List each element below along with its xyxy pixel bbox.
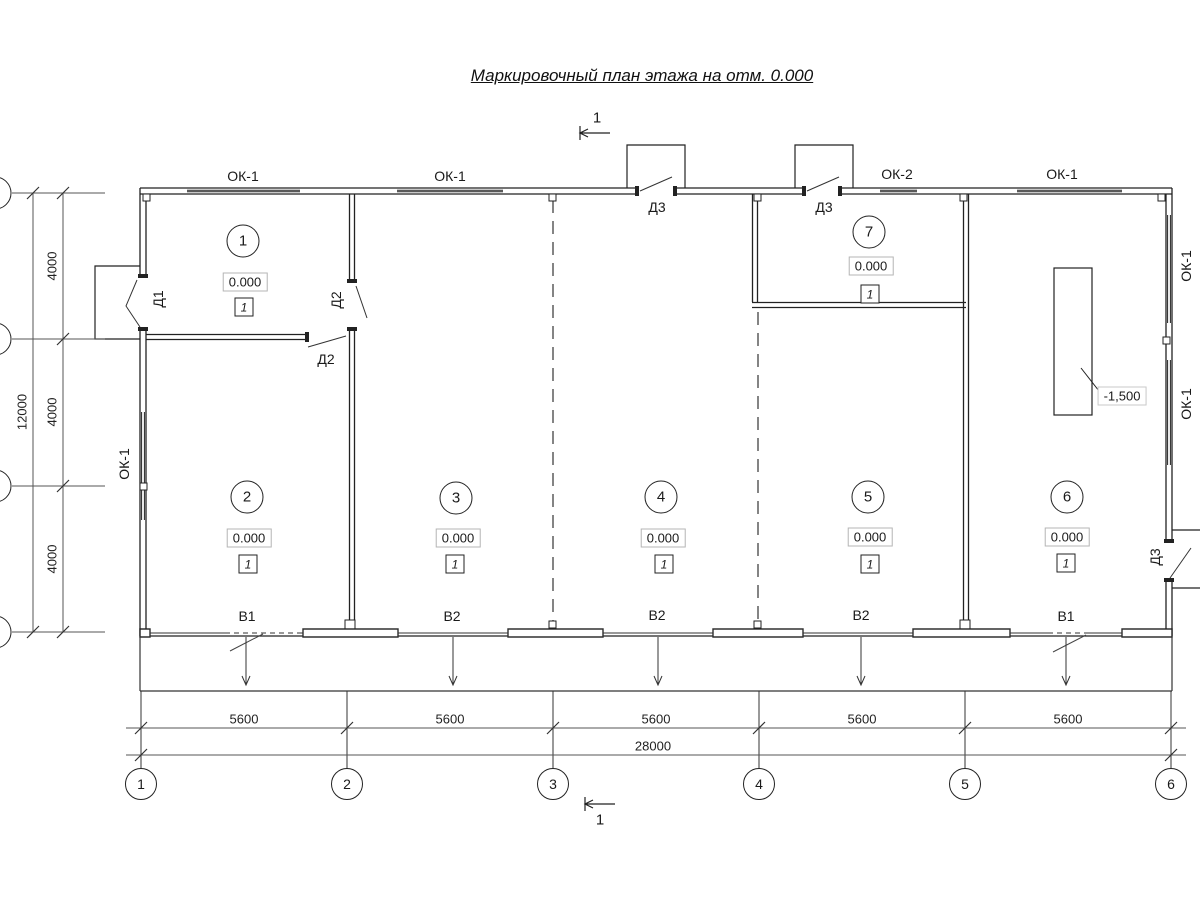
axis-2-label: 2 xyxy=(343,776,351,792)
room-2-number: 2 xyxy=(243,489,251,506)
dim-left-4000-1: 4000 xyxy=(45,252,60,281)
room-6-type-mark: 1 xyxy=(1057,554,1076,573)
axis-1-label: 1 xyxy=(137,776,145,792)
dim-left-4000-2: 4000 xyxy=(45,398,60,427)
axis-circle-6: 6 xyxy=(1155,768,1187,800)
dim-bottom-5600-1: 5600 xyxy=(230,712,259,727)
pit-outline xyxy=(1054,268,1099,415)
room-4-type-mark: 1 xyxy=(655,555,674,574)
room-5-number-circle: 5 xyxy=(852,481,885,514)
floor-plan-sheet: Маркировочный план этажа на отм. 0.000 1… xyxy=(0,0,1200,900)
pit-elevation-label: -1,500 xyxy=(1098,387,1147,406)
dim-bottom-5600-3: 5600 xyxy=(642,712,671,727)
room-2-type-mark: 1 xyxy=(239,555,258,574)
window-label-ok1-top-2: ОК-1 xyxy=(434,168,466,184)
axis-circle-5: 5 xyxy=(949,768,981,800)
door-label-d2-vertical: Д2 xyxy=(328,291,344,308)
gate-label-v2-2: В2 xyxy=(648,607,665,623)
axis-6-label: 6 xyxy=(1167,776,1175,792)
dim-left-4000-3: 4000 xyxy=(45,545,60,574)
room-1-number: 1 xyxy=(239,233,247,250)
window-label-ok1-top-1: ОК-1 xyxy=(227,168,259,184)
room-3-number: 3 xyxy=(452,490,460,507)
door-leaves xyxy=(126,177,1191,578)
room-3-elevation: 0.000 xyxy=(436,529,481,548)
gate-label-v2-3: В2 xyxy=(852,607,869,623)
room-2-elevation: 0.000 xyxy=(227,529,272,548)
window-label-ok2-top: ОК-2 xyxy=(881,166,913,182)
room-6-number: 6 xyxy=(1063,489,1071,506)
room-1-number-circle: 1 xyxy=(227,225,260,258)
room-5-number: 5 xyxy=(864,489,872,506)
dim-bottom-5600-5: 5600 xyxy=(1054,712,1083,727)
axis-3-label: 3 xyxy=(549,776,557,792)
door-label-d3-top-1: Д3 xyxy=(648,199,665,215)
gate-label-v1-2: В1 xyxy=(1057,608,1074,624)
dim-left-total-12000: 12000 xyxy=(15,394,30,430)
dim-bottom-5600-4: 5600 xyxy=(848,712,877,727)
room-7-type-mark: 1 xyxy=(861,285,880,304)
room-7-number: 7 xyxy=(865,224,873,241)
room-2-number-circle: 2 xyxy=(231,481,264,514)
room-6-number-circle: 6 xyxy=(1051,481,1084,514)
dim-bottom-5600-2: 5600 xyxy=(436,712,465,727)
window-label-ok1-top-3: ОК-1 xyxy=(1046,166,1078,182)
window-label-ok1-right-1: ОК-1 xyxy=(1178,250,1194,282)
axis-5-label: 5 xyxy=(961,776,969,792)
axis-4-label: 4 xyxy=(755,776,763,792)
window-label-ok1-left: ОК-1 xyxy=(116,448,132,480)
wall-end-caps xyxy=(138,186,1174,582)
window-label-ok1-right-2: ОК-1 xyxy=(1178,388,1194,420)
section-marks xyxy=(580,126,615,811)
door-label-d3-top-2: Д3 xyxy=(815,199,832,215)
room-3-number-circle: 3 xyxy=(440,482,473,515)
axis-circle-3: 3 xyxy=(537,768,569,800)
room-5-type-mark: 1 xyxy=(861,555,880,574)
room-1-elevation: 0.000 xyxy=(223,273,268,292)
gate-label-v2-1: В2 xyxy=(443,608,460,624)
axis-circle-1: 1 xyxy=(125,768,157,800)
axis-circle-2: 2 xyxy=(331,768,363,800)
door-label-d1: Д1 xyxy=(150,290,166,307)
loading-apron xyxy=(140,636,1172,691)
room-7-elevation: 0.000 xyxy=(849,257,894,276)
room-3-type-mark: 1 xyxy=(446,555,465,574)
window-glazing-lines xyxy=(142,190,1171,520)
bottom-dimension-lines xyxy=(126,691,1186,768)
section-mark-top-label: 1 xyxy=(593,110,601,127)
room-6-elevation: 0.000 xyxy=(1045,528,1090,547)
room-4-number-circle: 4 xyxy=(645,481,678,514)
page-title: Маркировочный план этажа на отм. 0.000 xyxy=(471,66,813,86)
door-label-d3-right: Д3 xyxy=(1147,548,1163,565)
interior-walls xyxy=(146,194,969,630)
room-5-elevation: 0.000 xyxy=(848,528,893,547)
gate-arrows xyxy=(242,637,1070,685)
room-1-type-mark: 1 xyxy=(235,298,254,317)
section-mark-bottom-label: 1 xyxy=(596,812,604,829)
dim-bottom-total-28000: 28000 xyxy=(635,739,671,754)
gate-label-v1-1: В1 xyxy=(238,608,255,624)
door-label-d2-horizontal: Д2 xyxy=(317,351,334,367)
plan-linework xyxy=(0,0,1200,900)
axis-circle-4: 4 xyxy=(743,768,775,800)
room-4-number: 4 xyxy=(657,489,665,506)
room-4-elevation: 0.000 xyxy=(641,529,686,548)
room-7-number-circle: 7 xyxy=(853,216,886,249)
